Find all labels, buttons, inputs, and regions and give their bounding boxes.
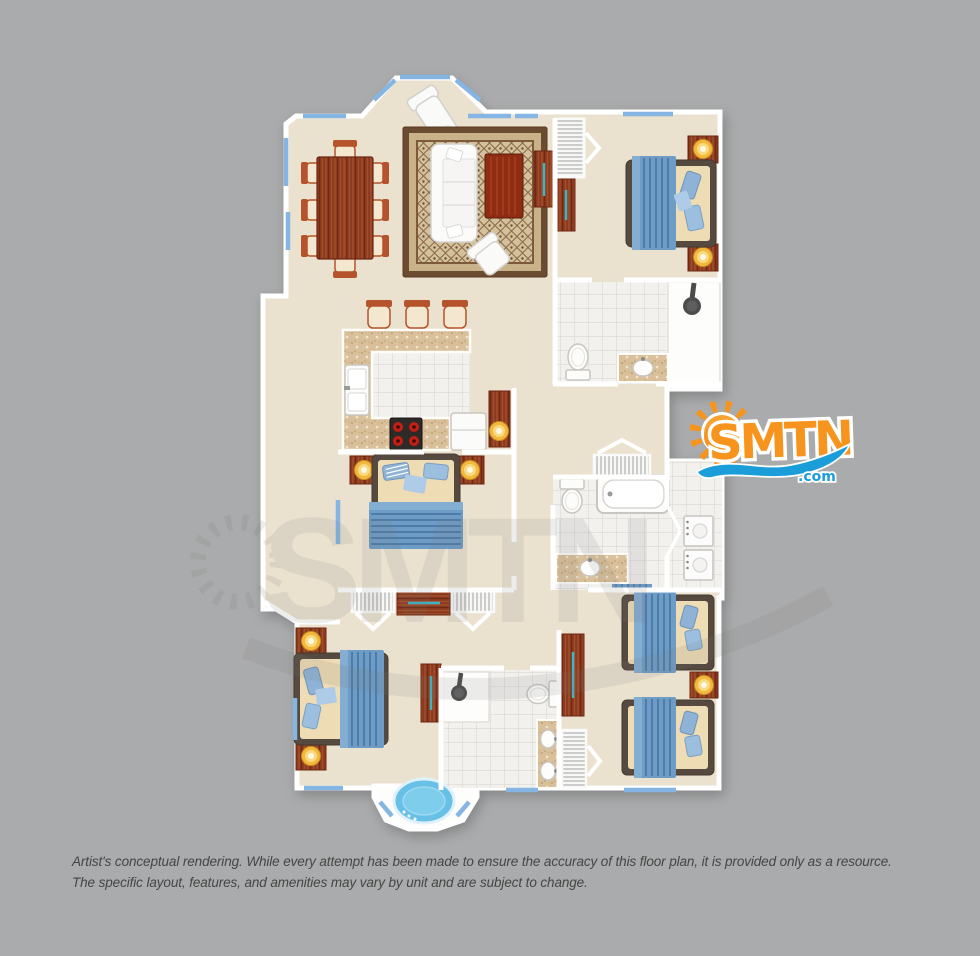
dresser (562, 634, 584, 716)
dresser (397, 592, 450, 615)
pillow (423, 463, 448, 480)
bathtub (597, 475, 669, 513)
nightstand (688, 136, 718, 163)
bed (369, 454, 463, 549)
pillow (684, 629, 702, 651)
kitchen-floor (372, 352, 470, 418)
bed (294, 650, 388, 748)
smtn-logo: SMTN .com (695, 406, 852, 485)
bed (626, 156, 716, 250)
pillow (315, 687, 337, 706)
nightstand (296, 628, 326, 655)
louvered-closet (452, 590, 494, 612)
sofa (431, 144, 477, 242)
louvered-closet (562, 730, 586, 788)
disclaimer-line2: The specific layout, features, and ameni… (72, 872, 942, 893)
bed (622, 592, 714, 673)
louvered-closet (594, 455, 650, 477)
refrigerator (451, 413, 486, 450)
disclaimer: Artist's conceptual rendering. While eve… (72, 851, 942, 893)
stove (390, 418, 422, 450)
shower-head (692, 283, 694, 299)
louvered-closet (352, 590, 394, 612)
bar-stool (366, 300, 392, 328)
nightstand (690, 672, 718, 698)
hall-cabinet (489, 391, 510, 447)
pillow (684, 735, 702, 757)
dryer (684, 550, 713, 580)
media-console (556, 179, 575, 231)
coffee-table (485, 154, 523, 218)
logo-tld: .com (798, 469, 836, 485)
bar-stool (404, 300, 430, 328)
vanity-sink (537, 720, 559, 788)
kitchen-sink (344, 365, 369, 415)
vanity-sink (618, 354, 668, 382)
disclaimer-line1: Artist's conceptual rendering. While eve… (72, 851, 942, 872)
jacuzzi-tub (394, 779, 454, 823)
shower-head (459, 673, 461, 687)
nightstand (688, 244, 718, 271)
media-console (534, 151, 553, 207)
floorplan-screenshot: SMTN SMTN .com Artist's conceptual rende… (0, 0, 980, 956)
toilet (566, 344, 590, 380)
vanity-sink (556, 554, 628, 583)
nightstand (296, 743, 326, 770)
washer (684, 516, 713, 546)
toilet (560, 479, 584, 513)
bar-stool (442, 300, 468, 328)
floor-plan-image: SMTN SMTN .com (0, 0, 980, 956)
shower-stall-bottom (443, 672, 489, 722)
bed (622, 697, 714, 778)
dresser (421, 664, 441, 722)
